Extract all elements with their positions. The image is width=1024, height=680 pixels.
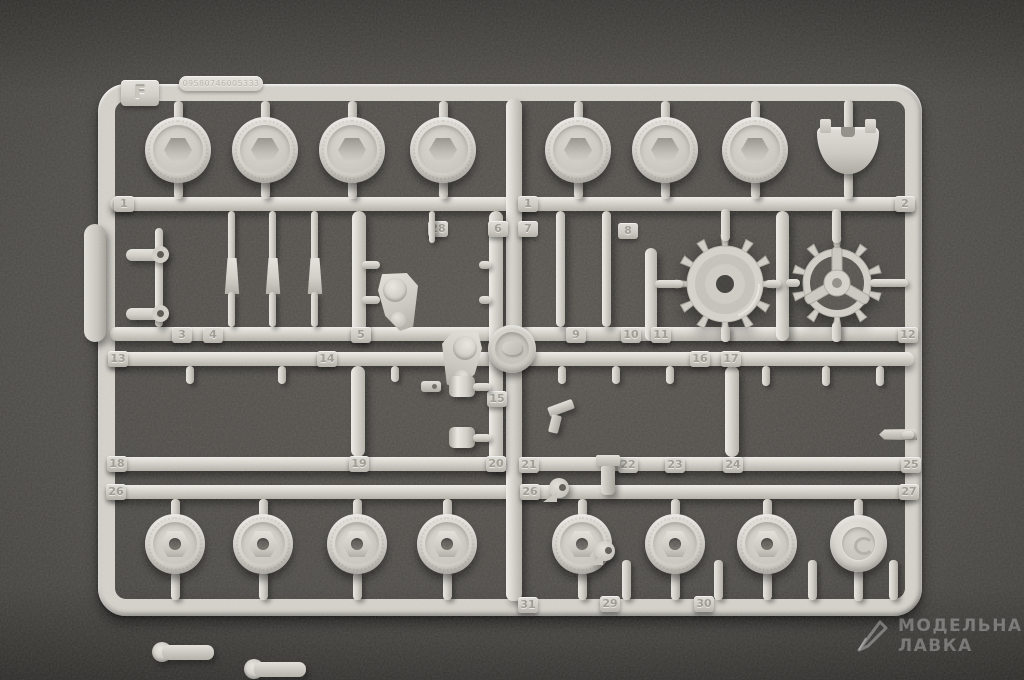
watermark: МОДЕЛЬНАЯ ЛАВКА: [856, 616, 1024, 656]
part-road-wheel-outer: [545, 117, 611, 183]
wheel-hex-opening: [651, 138, 679, 162]
part-number-tab-18: 18: [107, 456, 127, 472]
wheel-axle-hole: [441, 538, 453, 550]
sprue-runner: [808, 560, 817, 600]
part-number-tab-19: 19: [349, 456, 369, 472]
part-road-wheel-inner: [737, 514, 797, 574]
sprue-rail-vertical: [351, 366, 365, 457]
sprue-gate-stem: [832, 209, 841, 243]
watermark-line2: ЛАВКА: [898, 636, 1024, 656]
sprue-gate-stem: [186, 366, 194, 384]
sprue-gate-stem: [844, 100, 853, 130]
sprue-runner: [556, 211, 565, 327]
sprue-gate-stem: [612, 366, 620, 384]
wheel-hex-opening: [429, 138, 457, 162]
part-road-wheel-inner: [417, 514, 477, 574]
part-number-tab-27: 27: [899, 484, 919, 500]
sprue-runner: [889, 560, 898, 600]
wheel-hex-hub: [567, 531, 597, 557]
wheel-axle-hole: [576, 538, 588, 550]
part-number-tab-30: 30: [694, 596, 714, 612]
part-number-tab-21: 21: [519, 457, 539, 473]
sprue-gate-stem: [671, 572, 680, 600]
part-small-roller: [449, 376, 475, 397]
sprue-gate-stem: [429, 211, 435, 243]
part-number-tab-10: 10: [621, 327, 641, 343]
part-hook-lever: [549, 478, 569, 498]
sprue-gate-stem: [479, 296, 491, 304]
part-drive-sprocket-dished: [675, 234, 775, 334]
sprue-gate-stem: [443, 572, 452, 600]
part-number-tab-1: 1: [518, 196, 538, 212]
wheel-axle-hole: [351, 538, 363, 550]
sprue-gate-stem: [666, 366, 674, 384]
part-axle-roller: [244, 661, 306, 678]
sprue-gate-stem: [763, 572, 772, 600]
part-number-tab-16: 16: [690, 351, 710, 367]
sprue-gate-stem: [311, 211, 318, 261]
part-number-tab-12: 12: [898, 327, 918, 343]
part-number-tab-31: 31: [518, 597, 538, 613]
part-number-tab-13: 13: [108, 351, 128, 367]
sprue-gate-stem: [353, 572, 362, 600]
sprue-gate-stem: [391, 366, 399, 382]
sprue-gate-stem: [832, 322, 841, 342]
part-idler-drum: [830, 515, 887, 572]
sprue-gate-stem: [578, 572, 587, 600]
sprue-gate-stem: [473, 383, 491, 391]
sprue-side-bracket: [84, 224, 106, 342]
sprue-gate-stem: [362, 261, 380, 269]
part-axle-roller: [152, 644, 214, 661]
part-number-tab-2: 2: [895, 196, 915, 212]
part-number-tab-4: 4: [203, 327, 223, 343]
part-number-tab-7: 7: [518, 221, 538, 237]
part-number-tab-22: 22: [618, 457, 638, 473]
sprue-runner: [714, 560, 723, 600]
sprue-gate-stem: [902, 431, 914, 439]
part-stepped-mount: [596, 455, 620, 495]
sprue-letter-tab: F: [121, 80, 159, 106]
sprue-gate-stem: [558, 366, 566, 384]
watermark-line1: МОДЕЛЬНАЯ: [898, 616, 1024, 636]
part-number-tab-25: 25: [901, 457, 921, 473]
part-tow-shackle: [126, 308, 162, 320]
part-number-tab-15: 15: [487, 391, 507, 407]
sprue-gate-stem: [854, 569, 863, 601]
part-number-tab-6: 6: [488, 221, 508, 237]
part-number-tab-5: 5: [351, 327, 371, 343]
part-number-tab-23: 23: [665, 457, 685, 473]
part-clevis-pin: [421, 381, 441, 392]
sprue-gate-stem: [228, 292, 235, 327]
photo-of-model-sprue: 1122867834591011121314161715181920212223…: [0, 0, 1024, 680]
part-tow-shackle: [126, 249, 162, 261]
part-number-tab-8: 8: [618, 223, 638, 239]
wheel-hex-hub: [752, 531, 782, 557]
wheel-axle-hole: [669, 538, 681, 550]
wheel-hex-opening: [564, 138, 592, 162]
sprue-gate-stem: [362, 296, 380, 304]
part-road-wheel-inner: [327, 514, 387, 574]
wheel-axle-hole: [257, 538, 269, 550]
sprue-gate-stem: [171, 572, 180, 600]
part-number-tab-20: 20: [486, 456, 506, 472]
trumpeter-logo-medallion: [488, 325, 536, 373]
wheel-axle-hole: [169, 538, 181, 550]
sprue-gate-stem: [844, 171, 853, 199]
wheel-hex-hub: [432, 531, 462, 557]
wheel-hex-opening: [338, 138, 366, 162]
quill-icon: [856, 616, 890, 656]
sprue-gate-stem: [228, 211, 235, 261]
sprue-gate-stem: [311, 292, 318, 327]
sprue-gate-stem: [762, 366, 770, 386]
sprue-gate-stem: [876, 366, 884, 386]
part-road-wheel-outer: [722, 117, 788, 183]
part-number-tab-29: 29: [600, 596, 620, 612]
wheel-hex-hub: [660, 531, 690, 557]
part-road-wheel-outer: [232, 117, 298, 183]
part-number-tab-17: 17: [721, 351, 741, 367]
part-angled-bracket: [546, 401, 578, 435]
wheel-hex-hub: [248, 531, 278, 557]
sprue-gate-stem: [721, 326, 730, 342]
swing-arm-boss: [453, 336, 477, 360]
sprue-rail-vertical: [352, 211, 366, 341]
sprue-gate-stem: [269, 211, 276, 261]
sprue-gate-stem: [269, 292, 276, 327]
sprue-rail-vertical: [725, 366, 739, 457]
sprue-gate-stem: [765, 280, 781, 288]
sprue-gate-stem: [473, 434, 491, 442]
part-small-roller: [449, 427, 475, 448]
part-number-tab-9: 9: [566, 327, 586, 343]
sprue-gate-stem: [479, 261, 491, 269]
part-road-wheel-outer: [319, 117, 385, 183]
part-number-tab-26: 26: [520, 484, 540, 500]
wheel-hex-hub: [342, 531, 372, 557]
part-number-tab-11: 11: [651, 327, 671, 343]
sprue-gate-stem: [822, 366, 830, 386]
sprue-gate-stem: [721, 209, 730, 241]
wheel-axle-hole: [761, 538, 773, 550]
part-road-wheel-outer: [410, 117, 476, 183]
swing-arm-boss: [383, 278, 407, 302]
sprue-gate-stem: [655, 280, 683, 288]
sprue-runner: [602, 211, 611, 327]
mantlet-slot: [841, 127, 855, 137]
sprue-rail-vertical: [776, 211, 789, 341]
part-hook-lever: [595, 541, 615, 561]
part-number-tab-3: 3: [172, 327, 192, 343]
part-road-wheel-inner: [145, 514, 205, 574]
part-road-wheel-inner: [233, 514, 293, 574]
sprue-gate-stem: [870, 279, 908, 287]
part-number-tab-14: 14: [317, 351, 337, 367]
part-number-tab-1: 1: [114, 196, 134, 212]
wheel-hex-opening: [251, 138, 279, 162]
wheel-hex-hub: [160, 531, 190, 557]
wheel-hex-opening: [741, 138, 769, 162]
sprue-runner: [622, 560, 631, 600]
mold-stamp: 09580746005333: [179, 76, 263, 91]
sprue-gate-stem: [259, 572, 268, 600]
part-number-tab-26: 26: [106, 484, 126, 500]
part-road-wheel-inner: [645, 514, 705, 574]
part-road-wheel-outer: [632, 117, 698, 183]
sprue-gate-stem: [278, 366, 286, 384]
part-number-tab-24: 24: [723, 457, 743, 473]
sprue-gate-stem: [786, 279, 800, 287]
wheel-hex-opening: [164, 138, 192, 162]
part-road-wheel-outer: [145, 117, 211, 183]
